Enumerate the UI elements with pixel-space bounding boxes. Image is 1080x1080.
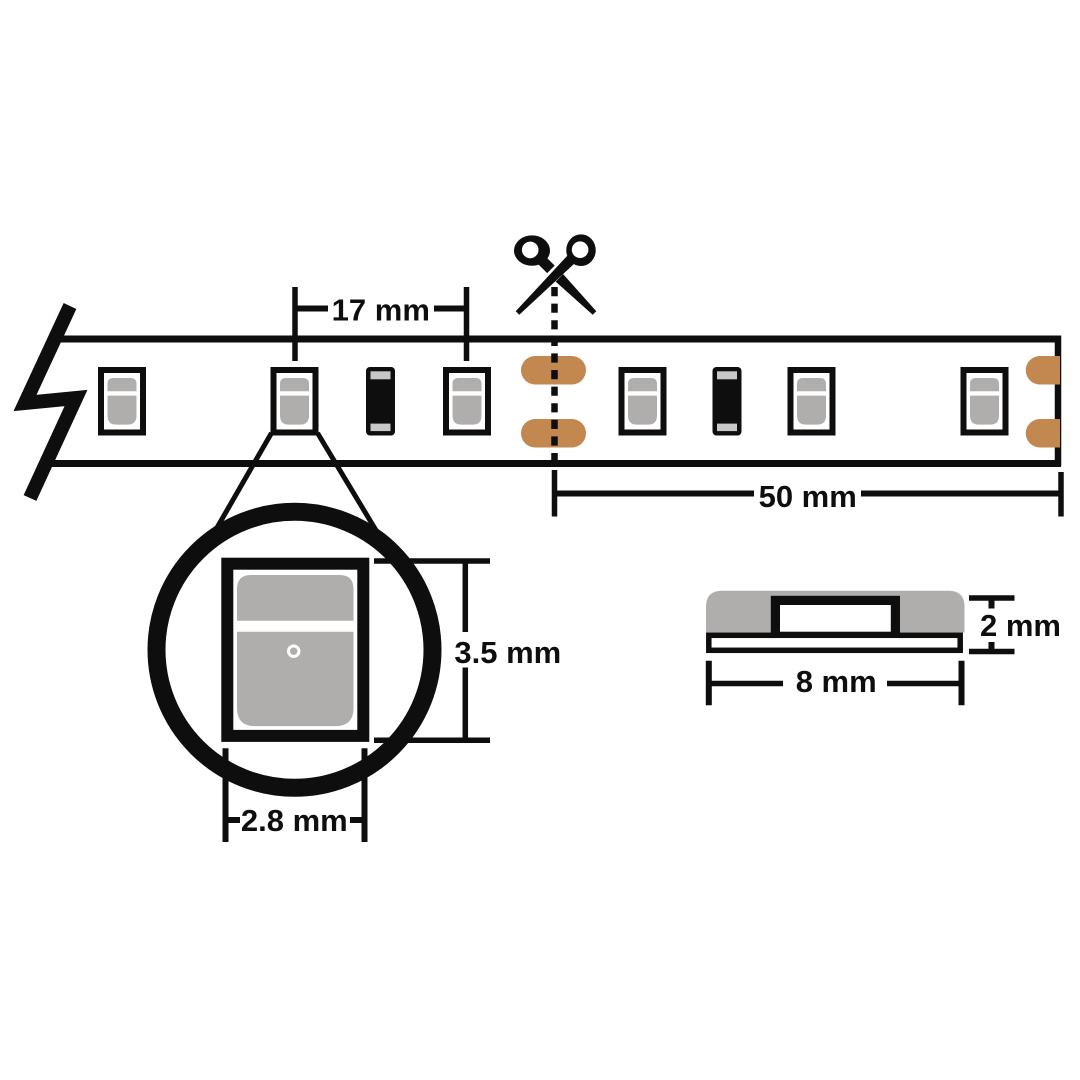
svg-text:17 mm: 17 mm bbox=[332, 292, 430, 327]
svg-text:2.8 mm: 2.8 mm bbox=[241, 803, 348, 838]
svg-text:8 mm: 8 mm bbox=[796, 664, 877, 699]
svg-text:50 mm: 50 mm bbox=[759, 479, 857, 514]
svg-text:3.5 mm: 3.5 mm bbox=[454, 635, 561, 670]
svg-text:2 mm: 2 mm bbox=[980, 608, 1061, 643]
